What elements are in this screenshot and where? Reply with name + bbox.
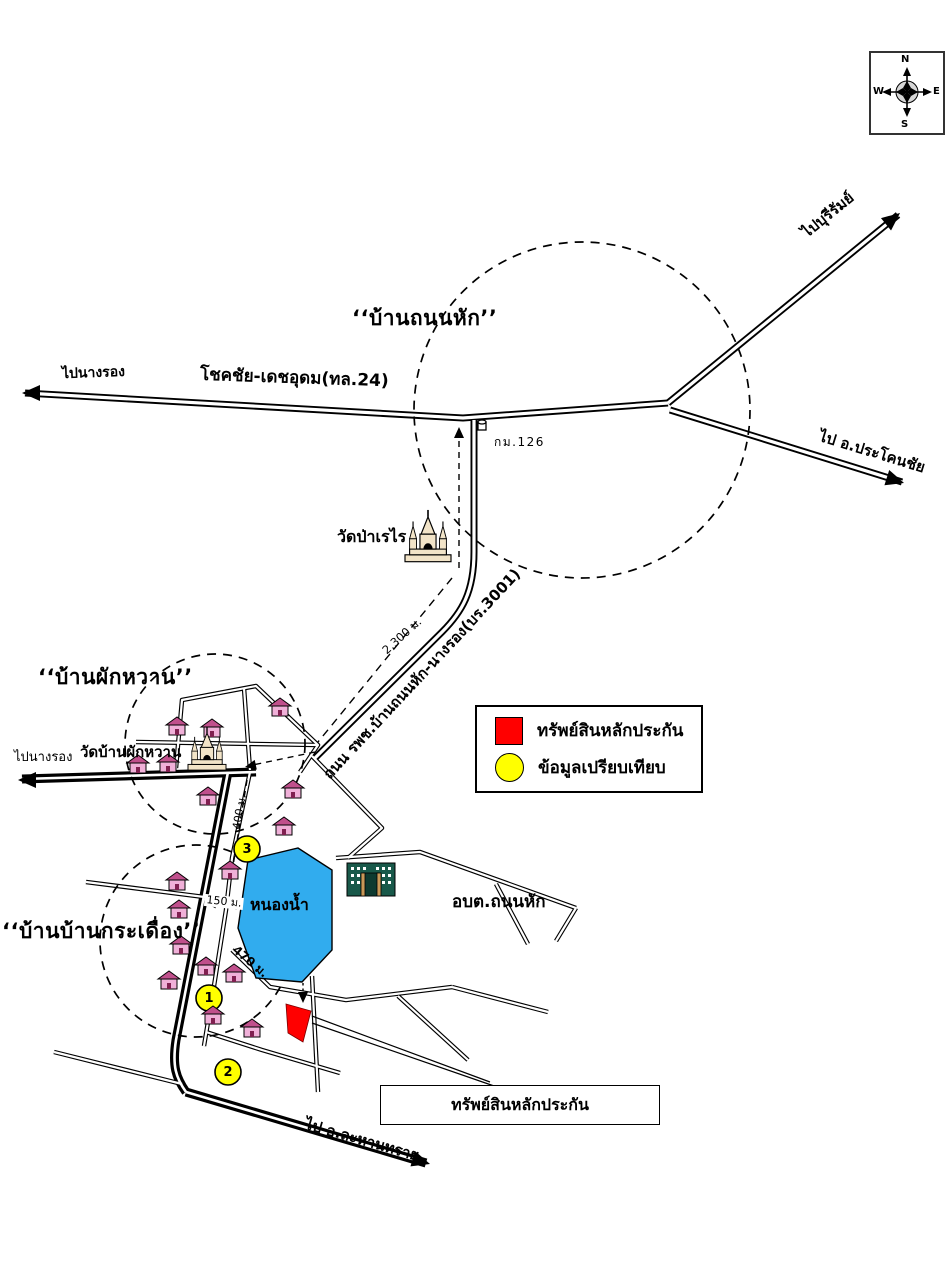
- compass-e-label: E: [933, 86, 940, 97]
- village-label-ban-phak-wan: ‘‘บ้านผักหวาน’’: [38, 666, 193, 689]
- compass-n-label: N: [901, 54, 909, 65]
- km-126-label: กม.126: [494, 436, 545, 449]
- obt-thanon-hak-icon: [347, 863, 395, 896]
- road-arrowheads: [18, 207, 906, 1172]
- callout-pointer-lines: [312, 1016, 497, 1087]
- obt-thanon-hak-label: อบต.ถนนหัก: [452, 893, 546, 912]
- road-label-to-nang-rong-top: ไปนางรอง: [62, 365, 125, 383]
- wat-pa-rerai-label: วัดป่าเรไร: [337, 528, 406, 546]
- yellow-circle-icon: [495, 753, 524, 782]
- km-126-post-icon: [478, 420, 486, 430]
- legend-row-collateral: ทรัพย์สินหลักประกัน: [495, 717, 701, 745]
- collateral-callout-label: ทรัพย์สินหลักประกัน: [451, 1093, 589, 1118]
- village-label-ban-thanon-hak: ‘‘บ้านถนนหัก’’: [352, 307, 497, 330]
- location-map: N S W E ‘‘บ้านถนนหัก’’ ‘‘บ้านผักหวาน’’ ‘…: [0, 0, 950, 1281]
- compass-w-label: W: [873, 86, 884, 97]
- compass-s-label: S: [901, 119, 908, 130]
- comparable-1-number[interactable]: 1: [204, 992, 213, 1006]
- red-square-icon: [495, 717, 523, 745]
- collateral-property-marker[interactable]: [286, 1004, 311, 1042]
- collateral-callout: ทรัพย์สินหลักประกัน: [380, 1085, 660, 1125]
- comparable-2-number[interactable]: 2: [223, 1066, 232, 1080]
- wat-ban-phak-wan-label: วัดบ้านผักหวาน: [80, 744, 181, 761]
- comparable-3-number[interactable]: 3: [242, 843, 251, 857]
- village-label-ban-kradueang: ‘‘บ้านบ้านกระเดื่อง’’: [2, 920, 200, 943]
- legend-collateral-label: ทรัพย์สินหลักประกัน: [537, 717, 683, 744]
- pond-label: หนองน้ำ: [250, 896, 309, 914]
- legend: ทรัพย์สินหลักประกัน ข้อมูลเปรียบเทียบ: [475, 705, 703, 793]
- legend-row-comparable: ข้อมูลเปรียบเทียบ: [495, 753, 701, 782]
- road-label-to-nang-rong-left: ไปนางรอง: [14, 751, 72, 765]
- wat-pa-rerai-icon: [405, 510, 451, 562]
- legend-comparable-label: ข้อมูลเปรียบเทียบ: [538, 754, 666, 781]
